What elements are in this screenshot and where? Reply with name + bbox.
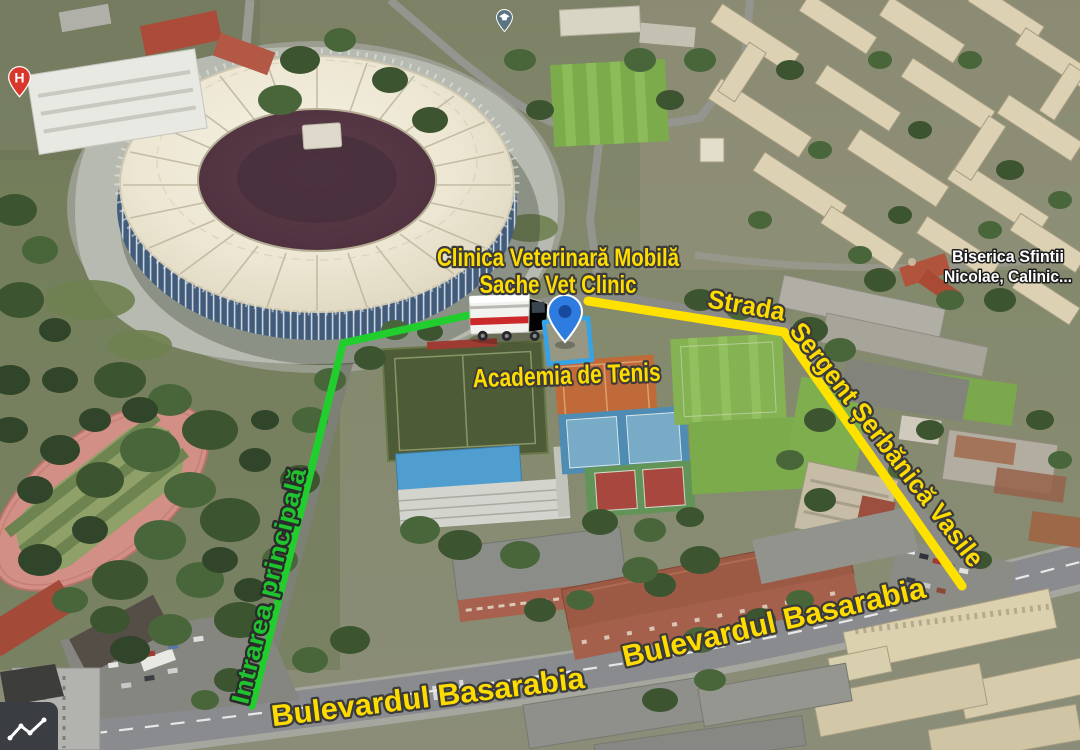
church-label-line2: Nicolae, Calinic... (944, 267, 1072, 286)
clinic-label-line1: Clinica Veterinară Mobilă (437, 244, 680, 272)
path-tool-chip[interactable] (0, 702, 58, 750)
clinic-label-line2: Sache Vet Clinic (480, 271, 637, 299)
google-earth-3d-view[interactable]: H Clinica Veterinară Mobilă Sache Vet Cl… (0, 0, 1080, 750)
map-canvas[interactable]: H Clinica Veterinară Mobilă Sache Vet Cl… (0, 0, 1080, 750)
church-label-line1: Biserica Sfintii (952, 247, 1064, 266)
pin-inner-dot (559, 305, 572, 318)
hospital-pin-letter: H (14, 70, 24, 86)
ambulance-vehicle (468, 294, 549, 346)
